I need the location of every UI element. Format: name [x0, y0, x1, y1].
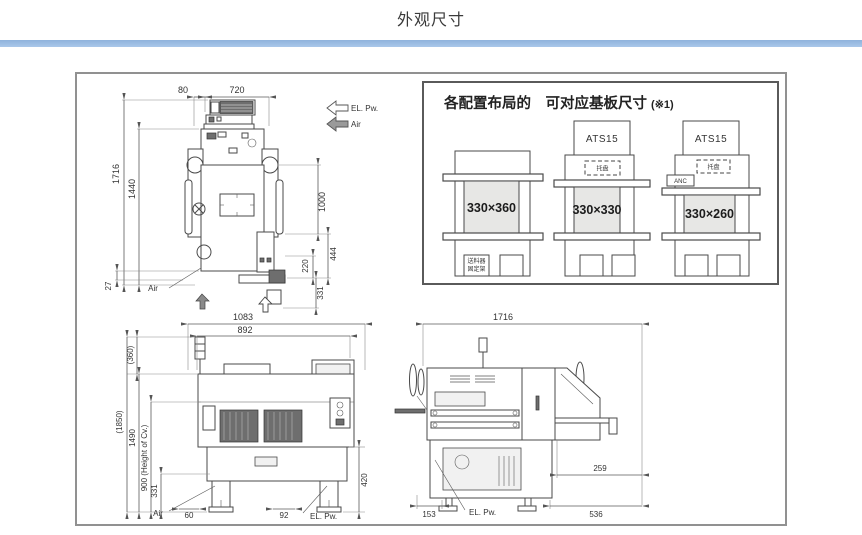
config-title-text: 各配置布局的 可对应基板尺寸 — [444, 96, 647, 112]
dim-259: 259 — [593, 464, 607, 473]
dim-1000: 1000 — [317, 192, 327, 212]
page-title: 外观尺寸 — [0, 6, 862, 30]
side-view-drawing: 1716 259 153 EL. Pw. 536 — [395, 310, 657, 524]
dim-92: 92 — [280, 511, 289, 520]
front-view-machine — [195, 337, 354, 512]
board-size-2: 330×330 — [572, 203, 621, 217]
utility-arrows: EL. Pw. Air — [327, 101, 378, 131]
dim-1716: 1716 — [111, 164, 121, 184]
dim-892: 892 — [237, 325, 252, 335]
side-view-dim-259: 259 — [557, 440, 642, 478]
dim-420: 420 — [360, 473, 369, 487]
dim-536: 536 — [589, 510, 603, 519]
dim-331: 331 — [316, 286, 325, 300]
feeder-stand-label-line1: 送料器 — [467, 257, 485, 265]
feeder-stand-label-line2: 固定架 — [467, 265, 485, 273]
top-view-machine — [185, 100, 285, 304]
top-view-air-callout: Air — [148, 268, 201, 293]
ats15-label-3: ATS15 — [695, 134, 727, 145]
config-layout-3: ATS15 托盘 ANC 330×260 — [662, 121, 760, 276]
dim-220: 220 — [301, 259, 310, 273]
air-up-arrow-icon — [196, 294, 209, 309]
config-layout-1: 330×360 送料器 固定架 — [443, 151, 543, 276]
el-pw-arrow-label: EL. Pw. — [351, 104, 378, 113]
ats15-label-2: ATS15 — [586, 134, 618, 145]
config-layout-2: ATS15 托盘 330×330 — [554, 121, 650, 276]
tray-label-2: 托盘 — [596, 165, 608, 173]
air-arrow-icon — [327, 117, 348, 131]
dim-900-height-of-cv: 900 (Height of Cv.) — [140, 424, 149, 491]
front-view-drawing: 1083 892 (360) (1850) 1490 — [115, 310, 377, 522]
top-view-dims-right: 1000 444 220 331 — [279, 165, 338, 308]
dim-331-front: 331 — [150, 484, 159, 498]
air-arrow-label: Air — [351, 120, 361, 129]
config-layouts-drawing: 330×360 送料器 固定架 ATS15 托盘 330×330 — [424, 113, 781, 283]
dim-1083: 1083 — [233, 312, 253, 322]
dim-153: 153 — [422, 510, 436, 519]
board-size-3: 330×260 — [685, 207, 734, 221]
dim-720: 720 — [229, 85, 244, 95]
board-size-1: 330×360 — [467, 201, 516, 215]
accent-divider-bar — [0, 40, 862, 47]
air-leader-label: Air — [148, 284, 158, 293]
front-view-dims-left: (360) (1850) 1490 900 (Height of Cv.) 33… — [115, 337, 210, 512]
side-el-pw-label: EL. Pw. — [469, 508, 496, 517]
front-view-dims-bottom: Air 60 92 EL. Pw. — [153, 486, 337, 521]
dim-444: 444 — [329, 247, 338, 261]
el-pw-arrow-icon — [327, 101, 348, 115]
drawing-frame: 80 720 1716 1440 27 — [75, 72, 787, 526]
side-view-machine — [395, 338, 617, 511]
dim-360: (360) — [126, 345, 135, 364]
dim-1490: 1490 — [128, 429, 137, 447]
config-panel-title: 各配置布局的 可对应基板尺寸 (※1) — [444, 92, 674, 113]
top-view-drawing: 80 720 1716 1440 27 — [95, 82, 415, 319]
config-title-note: (※1) — [651, 99, 674, 111]
board-size-config-panel: 各配置布局的 可对应基板尺寸 (※1) 330×360 送料器 固定架 — [422, 81, 779, 285]
anc-label: ANC — [674, 179, 687, 185]
dim-1440: 1440 — [127, 179, 137, 199]
dim-27: 27 — [104, 281, 113, 290]
dim-1850: (1850) — [115, 410, 124, 433]
front-el-pw-label: EL. Pw. — [310, 512, 337, 521]
dim-80: 80 — [178, 85, 188, 95]
tray-label-3: 托盘 — [707, 163, 719, 171]
dimension-spec-page: 外观尺寸 — [0, 0, 862, 535]
dim-1716-side: 1716 — [493, 312, 513, 322]
dim-60: 60 — [185, 511, 194, 520]
front-air-label: Air — [153, 509, 163, 518]
